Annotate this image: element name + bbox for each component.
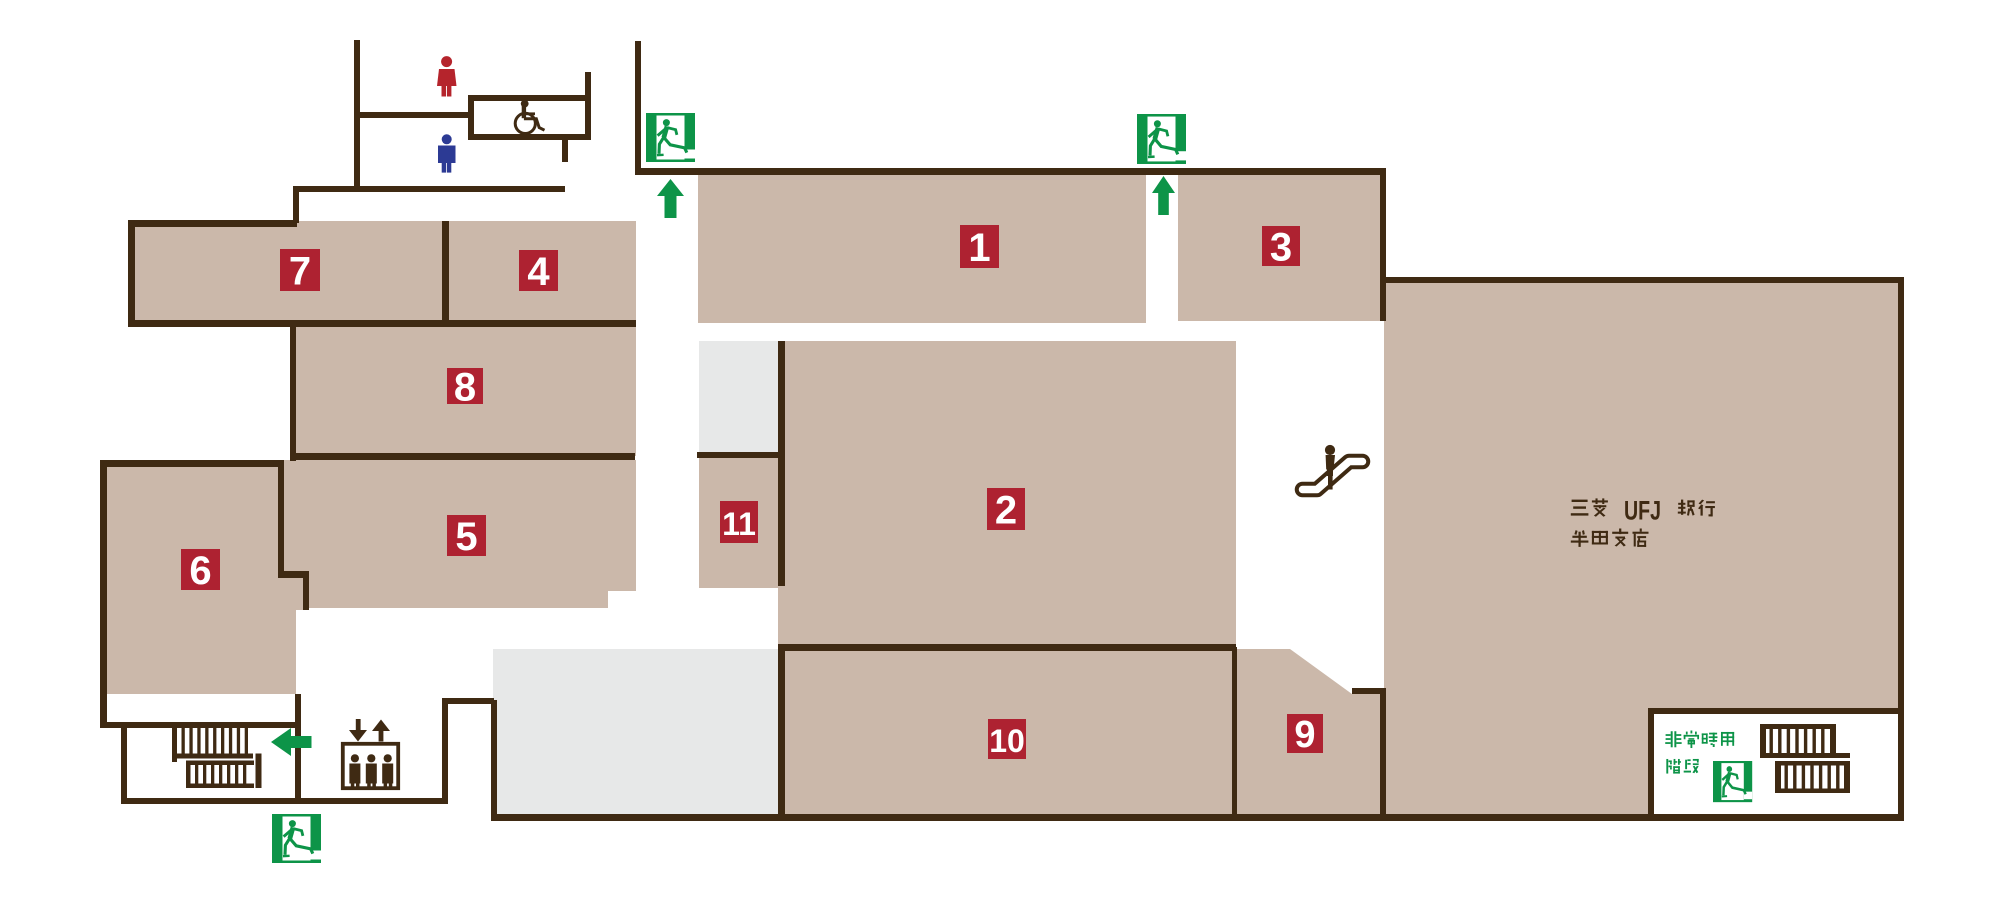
- svg-text:8: 8: [454, 365, 476, 409]
- svg-text:4: 4: [527, 250, 550, 294]
- svg-text:6: 6: [189, 549, 211, 593]
- svg-text:9: 9: [1294, 714, 1315, 756]
- svg-text:5: 5: [455, 515, 477, 559]
- svg-text:7: 7: [289, 249, 311, 293]
- svg-text:3: 3: [1270, 225, 1292, 269]
- svg-text:1: 1: [968, 226, 990, 270]
- svg-text:11: 11: [722, 506, 756, 542]
- svg-text:UFJ: UFJ: [1624, 496, 1661, 526]
- svg-text:10: 10: [989, 723, 1025, 759]
- svg-text:2: 2: [995, 488, 1017, 532]
